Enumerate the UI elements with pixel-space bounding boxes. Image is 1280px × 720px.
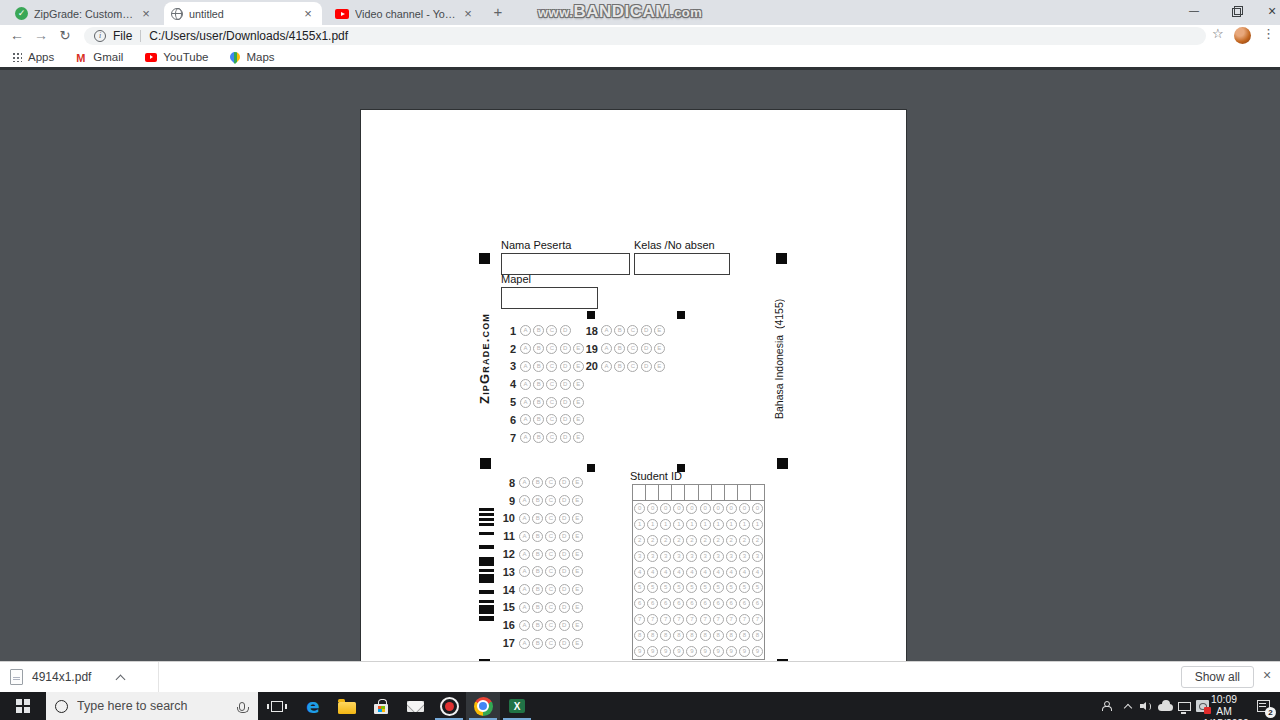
id-bubble: 2 <box>700 535 711 546</box>
question-number: 17 <box>499 637 515 649</box>
answer-bubble: A <box>519 477 530 488</box>
question-number: 13 <box>499 566 515 578</box>
bookmark-label: YouTube <box>163 51 208 63</box>
id-header-cell <box>699 485 712 500</box>
watermark-prefix: www. <box>538 5 573 20</box>
watermark-main: BANDICAM <box>573 2 670 22</box>
question-number: 11 <box>499 530 515 542</box>
answer-bubble: B <box>533 361 544 372</box>
answer-bubble: E <box>572 513 583 524</box>
tab-title: untitled <box>189 8 297 20</box>
answer-bubble: D <box>560 432 571 443</box>
tray-onedrive[interactable] <box>1155 692 1175 720</box>
id-bubble: 7 <box>673 614 684 625</box>
id-bubble: 4 <box>634 567 645 578</box>
speaker-icon <box>1140 701 1152 711</box>
id-bubble: 3 <box>726 551 737 562</box>
tray-people[interactable] <box>1096 692 1116 720</box>
bookmark-maps[interactable]: Maps <box>230 51 274 63</box>
tab-zipgrade[interactable]: ZipGrade: Custom Answer Sheets × <box>8 2 160 25</box>
id-bubble: 9 <box>634 646 645 657</box>
barcode-bar <box>479 513 494 516</box>
answer-bubble: D <box>559 566 570 577</box>
answer-bubble: D <box>559 549 570 560</box>
cortana-circle-icon <box>55 700 68 713</box>
answer-bubble: A <box>519 620 530 631</box>
tab-untitled[interactable]: untitled × <box>164 2 322 25</box>
id-bubble: 8 <box>700 630 711 641</box>
answers-18-20: 18ABCDE19ABCDE20ABCDE <box>584 322 667 375</box>
answer-bubble: D <box>559 620 570 631</box>
bookmark-label: Gmail <box>93 51 123 63</box>
id-digit-row: 8888888888 <box>633 627 764 643</box>
id-bubble: 3 <box>647 551 658 562</box>
start-button[interactable] <box>0 692 46 720</box>
answer-bubble: B <box>532 477 543 488</box>
zipgrade-check-icon <box>15 7 28 20</box>
bookmark-label: Maps <box>246 51 274 63</box>
bookmark-star-icon[interactable] <box>1212 26 1224 41</box>
answer-bubble: C <box>545 549 556 560</box>
question-row: 4ABCDE <box>500 375 586 393</box>
question-row: 17ABCDE <box>499 634 585 652</box>
url-path: C:/Users/user/Downloads/4155x1.pdf <box>149 29 348 43</box>
answer-bubble: E <box>572 477 583 488</box>
id-bubble: 0 <box>713 503 724 514</box>
windows-logo-icon <box>16 699 30 713</box>
taskbar-mail[interactable] <box>398 692 432 720</box>
answer-bubble: A <box>519 495 530 506</box>
id-bubble: 2 <box>739 535 750 546</box>
id-bubble: 2 <box>726 535 737 546</box>
restore-button[interactable] <box>1220 0 1252 25</box>
answer-bubble: D <box>559 531 570 542</box>
barcode-bar <box>479 605 494 614</box>
taskbar-chrome[interactable] <box>466 692 500 720</box>
registration-mark <box>677 311 685 319</box>
barcode-bar <box>479 545 494 549</box>
id-bubble: 0 <box>660 503 671 514</box>
answer-bubble: C <box>546 397 557 408</box>
question-row: 2ABCDE <box>500 340 586 358</box>
forward-button[interactable]: → <box>30 25 52 47</box>
barcode-bar <box>479 569 494 572</box>
tray-network[interactable] <box>1174 692 1194 720</box>
answer-bubble: B <box>532 566 543 577</box>
id-bubble: 9 <box>686 646 697 657</box>
microphone-icon[interactable] <box>239 702 245 711</box>
gmail-icon <box>76 52 87 63</box>
id-bubble: 1 <box>752 519 763 530</box>
id-digit-row: 7777777777 <box>633 612 764 628</box>
bookmark-gmail[interactable]: Gmail <box>76 51 123 63</box>
barcode-bar <box>479 557 494 566</box>
answer-bubble: A <box>519 531 530 542</box>
id-header-cell <box>738 485 751 500</box>
id-bubble: 3 <box>660 551 671 562</box>
answer-bubble: D <box>559 495 570 506</box>
close-window-button[interactable] <box>1256 0 1280 25</box>
barcode-bar <box>479 508 494 511</box>
id-bubble: 8 <box>726 630 737 641</box>
id-bubble: 5 <box>647 582 658 593</box>
student-id-bubbles: 0000000000111111111122222222223333333333… <box>633 501 764 659</box>
answer-bubble: E <box>654 325 665 336</box>
question-number: 19 <box>584 343 598 355</box>
folder-icon <box>338 702 356 714</box>
tray-show-hidden[interactable] <box>1118 692 1138 720</box>
question-row: 15ABCDE <box>499 599 585 617</box>
id-bubble: 8 <box>686 630 697 641</box>
registration-mark <box>479 253 490 264</box>
profile-avatar[interactable] <box>1234 27 1251 44</box>
answer-bubble: A <box>520 432 531 443</box>
question-number: 5 <box>500 396 516 408</box>
answer-bubble: D <box>559 638 570 649</box>
id-bubble: 1 <box>739 519 750 530</box>
barcode-bar <box>479 532 494 535</box>
answer-bubble: D <box>560 361 571 372</box>
id-bubble: 4 <box>752 567 763 578</box>
id-bubble: 5 <box>660 582 671 593</box>
id-bubble: 5 <box>752 582 763 593</box>
id-bubble: 3 <box>686 551 697 562</box>
question-row: 14ABCDE <box>499 581 585 599</box>
reload-button[interactable]: ↻ <box>54 25 76 47</box>
bandicam-record-icon <box>440 697 459 716</box>
id-bubble: 9 <box>739 646 750 657</box>
id-bubble: 4 <box>713 567 724 578</box>
answer-bubble: A <box>519 638 530 649</box>
answer-bubble: A <box>520 414 531 425</box>
question-number: 10 <box>499 512 515 524</box>
taskbar-clock[interactable]: 10:09 AM 1/15/2020 <box>1203 694 1245 720</box>
registration-mark <box>776 253 787 264</box>
task-view-icon <box>271 701 283 712</box>
answer-bubble: D <box>559 602 570 613</box>
answer-bubble: A <box>519 566 530 577</box>
id-bubble: 6 <box>660 598 671 609</box>
tab-title: Video channel - YouTube Studio <box>355 8 457 20</box>
id-bubble: 7 <box>700 614 711 625</box>
cloud-icon <box>1158 704 1173 711</box>
answer-bubble: D <box>559 477 570 488</box>
notification-badge: 2 <box>1265 707 1276 718</box>
answer-bubble: B <box>614 361 625 372</box>
download-caret-icon[interactable] <box>116 674 126 684</box>
answer-bubble: D <box>641 325 652 336</box>
question-row: 11ABCDE <box>499 527 585 545</box>
answer-bubble: C <box>546 325 557 336</box>
question-row: 7ABCDE <box>500 429 586 447</box>
id-bubble: 4 <box>647 567 658 578</box>
answer-bubble: B <box>533 397 544 408</box>
id-bubble: 8 <box>713 630 724 641</box>
answer-bubble: C <box>546 379 557 390</box>
answer-bubble: E <box>572 584 583 595</box>
minimize-button[interactable] <box>1178 0 1210 25</box>
question-row: 5ABCDE <box>500 393 586 411</box>
answer-bubble: E <box>573 397 584 408</box>
id-header-cell <box>685 485 698 500</box>
subject-field-box <box>501 287 598 309</box>
answer-bubble: C <box>545 531 556 542</box>
id-bubble: 1 <box>686 519 697 530</box>
excel-icon <box>509 699 525 713</box>
barcode-bar <box>479 518 494 521</box>
download-item[interactable]: 4914x1.pdf <box>10 662 124 692</box>
id-bubble: 1 <box>700 519 711 530</box>
answer-bubble: C <box>546 414 557 425</box>
question-number: 9 <box>499 495 515 507</box>
id-bubble: 1 <box>713 519 724 530</box>
answer-bubble: A <box>520 343 531 354</box>
answer-bubble: C <box>546 361 557 372</box>
bookmark-label: Apps <box>28 51 54 63</box>
answer-bubble: D <box>641 361 652 372</box>
zipgrade-branding: ZipGrade.com <box>477 296 495 420</box>
id-bubble: 3 <box>739 551 750 562</box>
id-header-cell <box>751 485 764 500</box>
question-row: 3ABCDE <box>500 358 586 376</box>
youtube-icon <box>145 53 157 62</box>
id-bubble: 3 <box>634 551 645 562</box>
question-row: 19ABCDE <box>584 340 667 358</box>
taskbar-file-explorer[interactable] <box>330 692 364 720</box>
question-number: 1 <box>500 325 516 337</box>
answer-bubble: A <box>601 325 612 336</box>
id-bubble: 6 <box>752 598 763 609</box>
taskbar-edge[interactable] <box>296 692 330 720</box>
new-tab-button[interactable] <box>488 3 508 23</box>
browser-menu-icon[interactable] <box>1262 26 1275 41</box>
id-bubble: 1 <box>726 519 737 530</box>
question-number: 2 <box>500 343 516 355</box>
answer-bubble: C <box>546 432 557 443</box>
answer-bubble: D <box>560 343 571 354</box>
answer-bubble: B <box>533 414 544 425</box>
download-filename: 4914x1.pdf <box>32 670 91 684</box>
id-digit-row: 1111111111 <box>633 517 764 533</box>
search-placeholder-text: Type here to search <box>77 699 239 713</box>
answer-bubble: E <box>573 379 584 390</box>
id-bubble: 0 <box>739 503 750 514</box>
answer-bubble: A <box>601 343 612 354</box>
id-bubble: 6 <box>700 598 711 609</box>
bookmark-apps[interactable]: Apps <box>12 51 54 63</box>
id-bubble: 5 <box>726 582 737 593</box>
answer-bubble: A <box>519 549 530 560</box>
question-row: 8ABCDE <box>499 474 585 492</box>
id-bubble: 2 <box>634 535 645 546</box>
download-divider <box>158 662 159 692</box>
question-row: 1ABCD <box>500 322 586 340</box>
question-row: 6ABCDE <box>500 411 586 429</box>
answer-bubble: B <box>532 513 543 524</box>
question-number: 3 <box>500 360 516 372</box>
registration-mark <box>480 458 491 469</box>
id-bubble: 2 <box>752 535 763 546</box>
answer-bubble: C <box>545 477 556 488</box>
tab-close-icon[interactable]: × <box>461 7 475 21</box>
answer-bubble: C <box>545 584 556 595</box>
answer-bubble: A <box>520 379 531 390</box>
maps-pin-icon <box>228 50 242 64</box>
id-bubble: 4 <box>700 567 711 578</box>
id-bubble: 1 <box>660 519 671 530</box>
answer-bubble: B <box>614 343 625 354</box>
answer-bubble: E <box>572 620 583 631</box>
edge-icon <box>306 696 320 716</box>
id-bubble: 4 <box>686 567 697 578</box>
id-bubble: 7 <box>647 614 658 625</box>
download-bar: 4914x1.pdf Show all <box>0 661 1280 692</box>
answer-bubble: C <box>627 325 638 336</box>
id-bubble: 5 <box>634 582 645 593</box>
browser-window: ZipGrade: Custom Answer Sheets × untitle… <box>0 0 1280 720</box>
id-bubble: 8 <box>647 630 658 641</box>
answer-bubble: E <box>572 638 583 649</box>
id-bubble: 9 <box>700 646 711 657</box>
people-icon <box>1101 701 1111 711</box>
answer-bubble: B <box>532 638 543 649</box>
browser-toolbar: ← → ↻ File C:/Users/user/Downloads/4155x… <box>0 25 1280 47</box>
tab-strip: ZipGrade: Custom Answer Sheets × untitle… <box>0 0 1280 25</box>
id-digit-row: 3333333333 <box>633 548 764 564</box>
answer-bubble: A <box>520 397 531 408</box>
student-id-header <box>633 485 764 501</box>
id-bubble: 3 <box>673 551 684 562</box>
answer-bubble: C <box>545 638 556 649</box>
id-bubble: 0 <box>686 503 697 514</box>
info-icon[interactable] <box>94 30 106 42</box>
id-bubble: 5 <box>673 582 684 593</box>
barcode-bar <box>479 616 494 621</box>
id-bubble: 2 <box>686 535 697 546</box>
task-view-button[interactable] <box>260 692 294 720</box>
id-bubble: 1 <box>673 519 684 530</box>
id-digit-row: 4444444444 <box>633 564 764 580</box>
id-bubble: 8 <box>739 630 750 641</box>
question-number: 16 <box>499 619 515 631</box>
taskbar-store[interactable] <box>364 692 398 720</box>
taskbar-excel[interactable] <box>500 692 534 720</box>
id-bubble: 2 <box>647 535 658 546</box>
answer-bubble: E <box>573 414 584 425</box>
answer-bubble: D <box>560 397 571 408</box>
class-field-label: Kelas /No absen <box>634 239 715 251</box>
tab-close-icon[interactable]: × <box>139 7 153 21</box>
bookmark-youtube[interactable]: YouTube <box>145 51 208 63</box>
id-bubble: 6 <box>739 598 750 609</box>
url-scheme: File <box>113 29 132 43</box>
barcode-bar <box>479 590 494 594</box>
answer-bubble: A <box>520 361 531 372</box>
registration-mark <box>587 311 595 319</box>
id-bubble: 7 <box>634 614 645 625</box>
id-header-cell <box>633 485 646 500</box>
id-digit-row: 6666666666 <box>633 596 764 612</box>
id-header-cell <box>659 485 672 500</box>
id-header-cell <box>725 485 738 500</box>
id-bubble: 0 <box>673 503 684 514</box>
show-all-button[interactable]: Show all <box>1181 666 1254 688</box>
id-bubble: 7 <box>739 614 750 625</box>
answer-bubble: A <box>519 602 530 613</box>
barcode-bar <box>479 523 494 526</box>
id-bubble: 9 <box>713 646 724 657</box>
taskbar-search[interactable]: Type here to search <box>46 692 258 720</box>
address-bar[interactable]: File C:/Users/user/Downloads/4155x1.pdf <box>84 27 1206 45</box>
answer-bubble: A <box>601 361 612 372</box>
tab-youtube-studio[interactable]: Video channel - YouTube Studio × <box>328 2 482 25</box>
id-bubble: 5 <box>739 582 750 593</box>
id-bubble: 7 <box>660 614 671 625</box>
id-bubble: 5 <box>700 582 711 593</box>
pdf-viewer: Nama Peserta Kelas /No absen Mapel ZipGr… <box>0 67 1280 661</box>
apps-grid-icon <box>12 52 22 62</box>
answer-bubble: B <box>532 620 543 631</box>
answer-bubble: C <box>546 343 557 354</box>
answer-bubble: C <box>545 620 556 631</box>
id-bubble: 0 <box>634 503 645 514</box>
subject-field-label: Mapel <box>501 273 531 285</box>
registration-mark <box>587 464 595 472</box>
taskbar-bandicam[interactable] <box>432 692 466 720</box>
student-id-label: Student ID <box>630 470 682 482</box>
answer-bubble: D <box>641 343 652 354</box>
action-center-button[interactable]: 2 <box>1250 692 1276 720</box>
answer-bubble: C <box>627 343 638 354</box>
answer-bubble: C <box>545 602 556 613</box>
id-bubble: 5 <box>686 582 697 593</box>
id-bubble: 8 <box>752 630 763 641</box>
answer-bubble: C <box>627 361 638 372</box>
answer-bubble: B <box>532 531 543 542</box>
id-bubble: 6 <box>713 598 724 609</box>
id-bubble: 6 <box>686 598 697 609</box>
pdf-page: Nama Peserta Kelas /No absen Mapel ZipGr… <box>361 110 906 664</box>
tab-close-icon[interactable]: × <box>301 7 315 21</box>
id-digit-row: 2222222222 <box>633 533 764 549</box>
id-bubble: 5 <box>713 582 724 593</box>
bookmarks-bar: Apps Gmail YouTube Maps <box>0 47 1280 67</box>
answer-bubble: A <box>519 513 530 524</box>
answer-bubble: B <box>533 432 544 443</box>
answer-bubble: E <box>573 361 584 372</box>
store-bag-icon <box>374 704 388 714</box>
id-bubble: 4 <box>673 567 684 578</box>
question-number: 12 <box>499 548 515 560</box>
tab-title: ZipGrade: Custom Answer Sheets <box>34 8 135 20</box>
registration-mark <box>777 458 788 469</box>
answer-bubble: B <box>533 325 544 336</box>
id-bubble: 2 <box>660 535 671 546</box>
name-field-label: Nama Peserta <box>501 239 571 251</box>
answer-bubble: C <box>545 495 556 506</box>
question-row: 9ABCDE <box>499 492 585 510</box>
back-button[interactable]: ← <box>6 25 28 47</box>
question-row: 18ABCDE <box>584 322 667 340</box>
question-number: 18 <box>584 325 598 337</box>
id-bubble: 8 <box>634 630 645 641</box>
id-bubble: 9 <box>660 646 671 657</box>
id-bubble: 4 <box>739 567 750 578</box>
download-bar-close-icon[interactable] <box>1258 667 1276 685</box>
answer-bubble: D <box>559 513 570 524</box>
tray-volume[interactable] <box>1136 692 1156 720</box>
id-bubble: 8 <box>660 630 671 641</box>
